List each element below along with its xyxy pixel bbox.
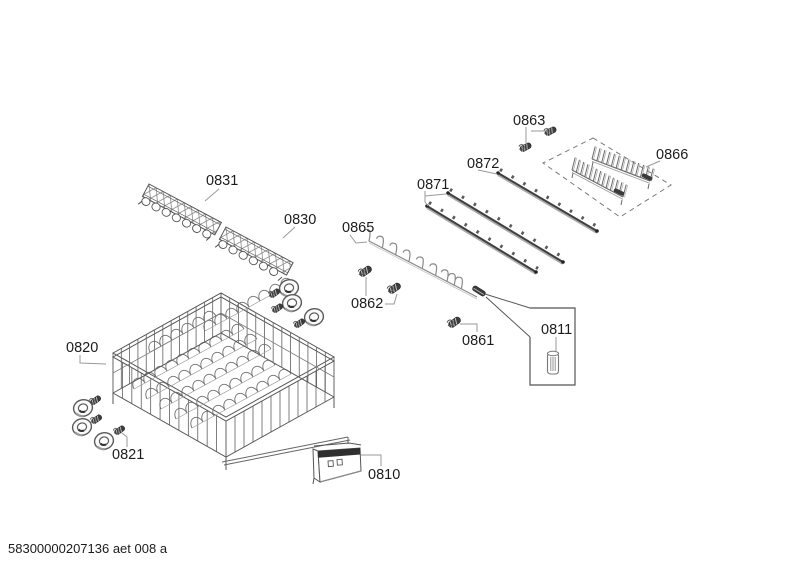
label-0871: 0871: [417, 177, 449, 193]
part-rail-0872: [496, 170, 599, 233]
part-labels: 0831 0830 0865 0871 0872 0863 0866 0862 …: [66, 113, 688, 483]
label-0821: 0821: [112, 447, 144, 463]
label-0810: 0810: [368, 467, 400, 483]
part-lower-rack: [113, 278, 350, 470]
part-clip-0862-a: [357, 263, 373, 278]
label-0872: 0872: [467, 156, 499, 172]
part-clip-0861: [446, 314, 462, 329]
label-0866: 0866: [656, 147, 688, 163]
kit-box-0866: [543, 138, 671, 217]
label-0820: 0820: [66, 340, 98, 356]
part-tine-row-0831: [138, 184, 221, 243]
roller-cluster-left: [71, 394, 126, 452]
label-0830: 0830: [284, 212, 316, 228]
bearing-clip: [270, 302, 283, 314]
exploded-parts-diagram: 0831 0830 0865 0871 0872 0863 0866 0862 …: [0, 0, 800, 566]
plate-insert-comb-a: [592, 147, 655, 190]
part-clip-0863-b: [518, 140, 532, 152]
part-tine-row-0830: [215, 227, 293, 283]
label-0863: 0863: [513, 113, 545, 129]
roller-wheel: [303, 307, 326, 328]
detail-box-0811: [485, 294, 575, 385]
label-0831: 0831: [206, 173, 238, 189]
label-0861: 0861: [462, 333, 494, 349]
parts-diagram-page: 0831 0830 0865 0871 0872 0863 0866 0862 …: [0, 0, 800, 566]
roller-cluster-right: [267, 278, 325, 329]
part-clip-0862-b: [386, 280, 402, 295]
part-hook-wire-0865: [363, 229, 486, 299]
document-code: 58300000207136 aet 008 a: [8, 541, 168, 556]
label-0865: 0865: [342, 220, 374, 236]
label-0811: 0811: [541, 322, 572, 338]
label-0862: 0862: [351, 296, 383, 312]
roller-wheel: [71, 417, 94, 438]
bearing-clip: [292, 317, 305, 329]
part-tray-0810: [313, 443, 361, 484]
part-pin-0811: [548, 351, 559, 374]
